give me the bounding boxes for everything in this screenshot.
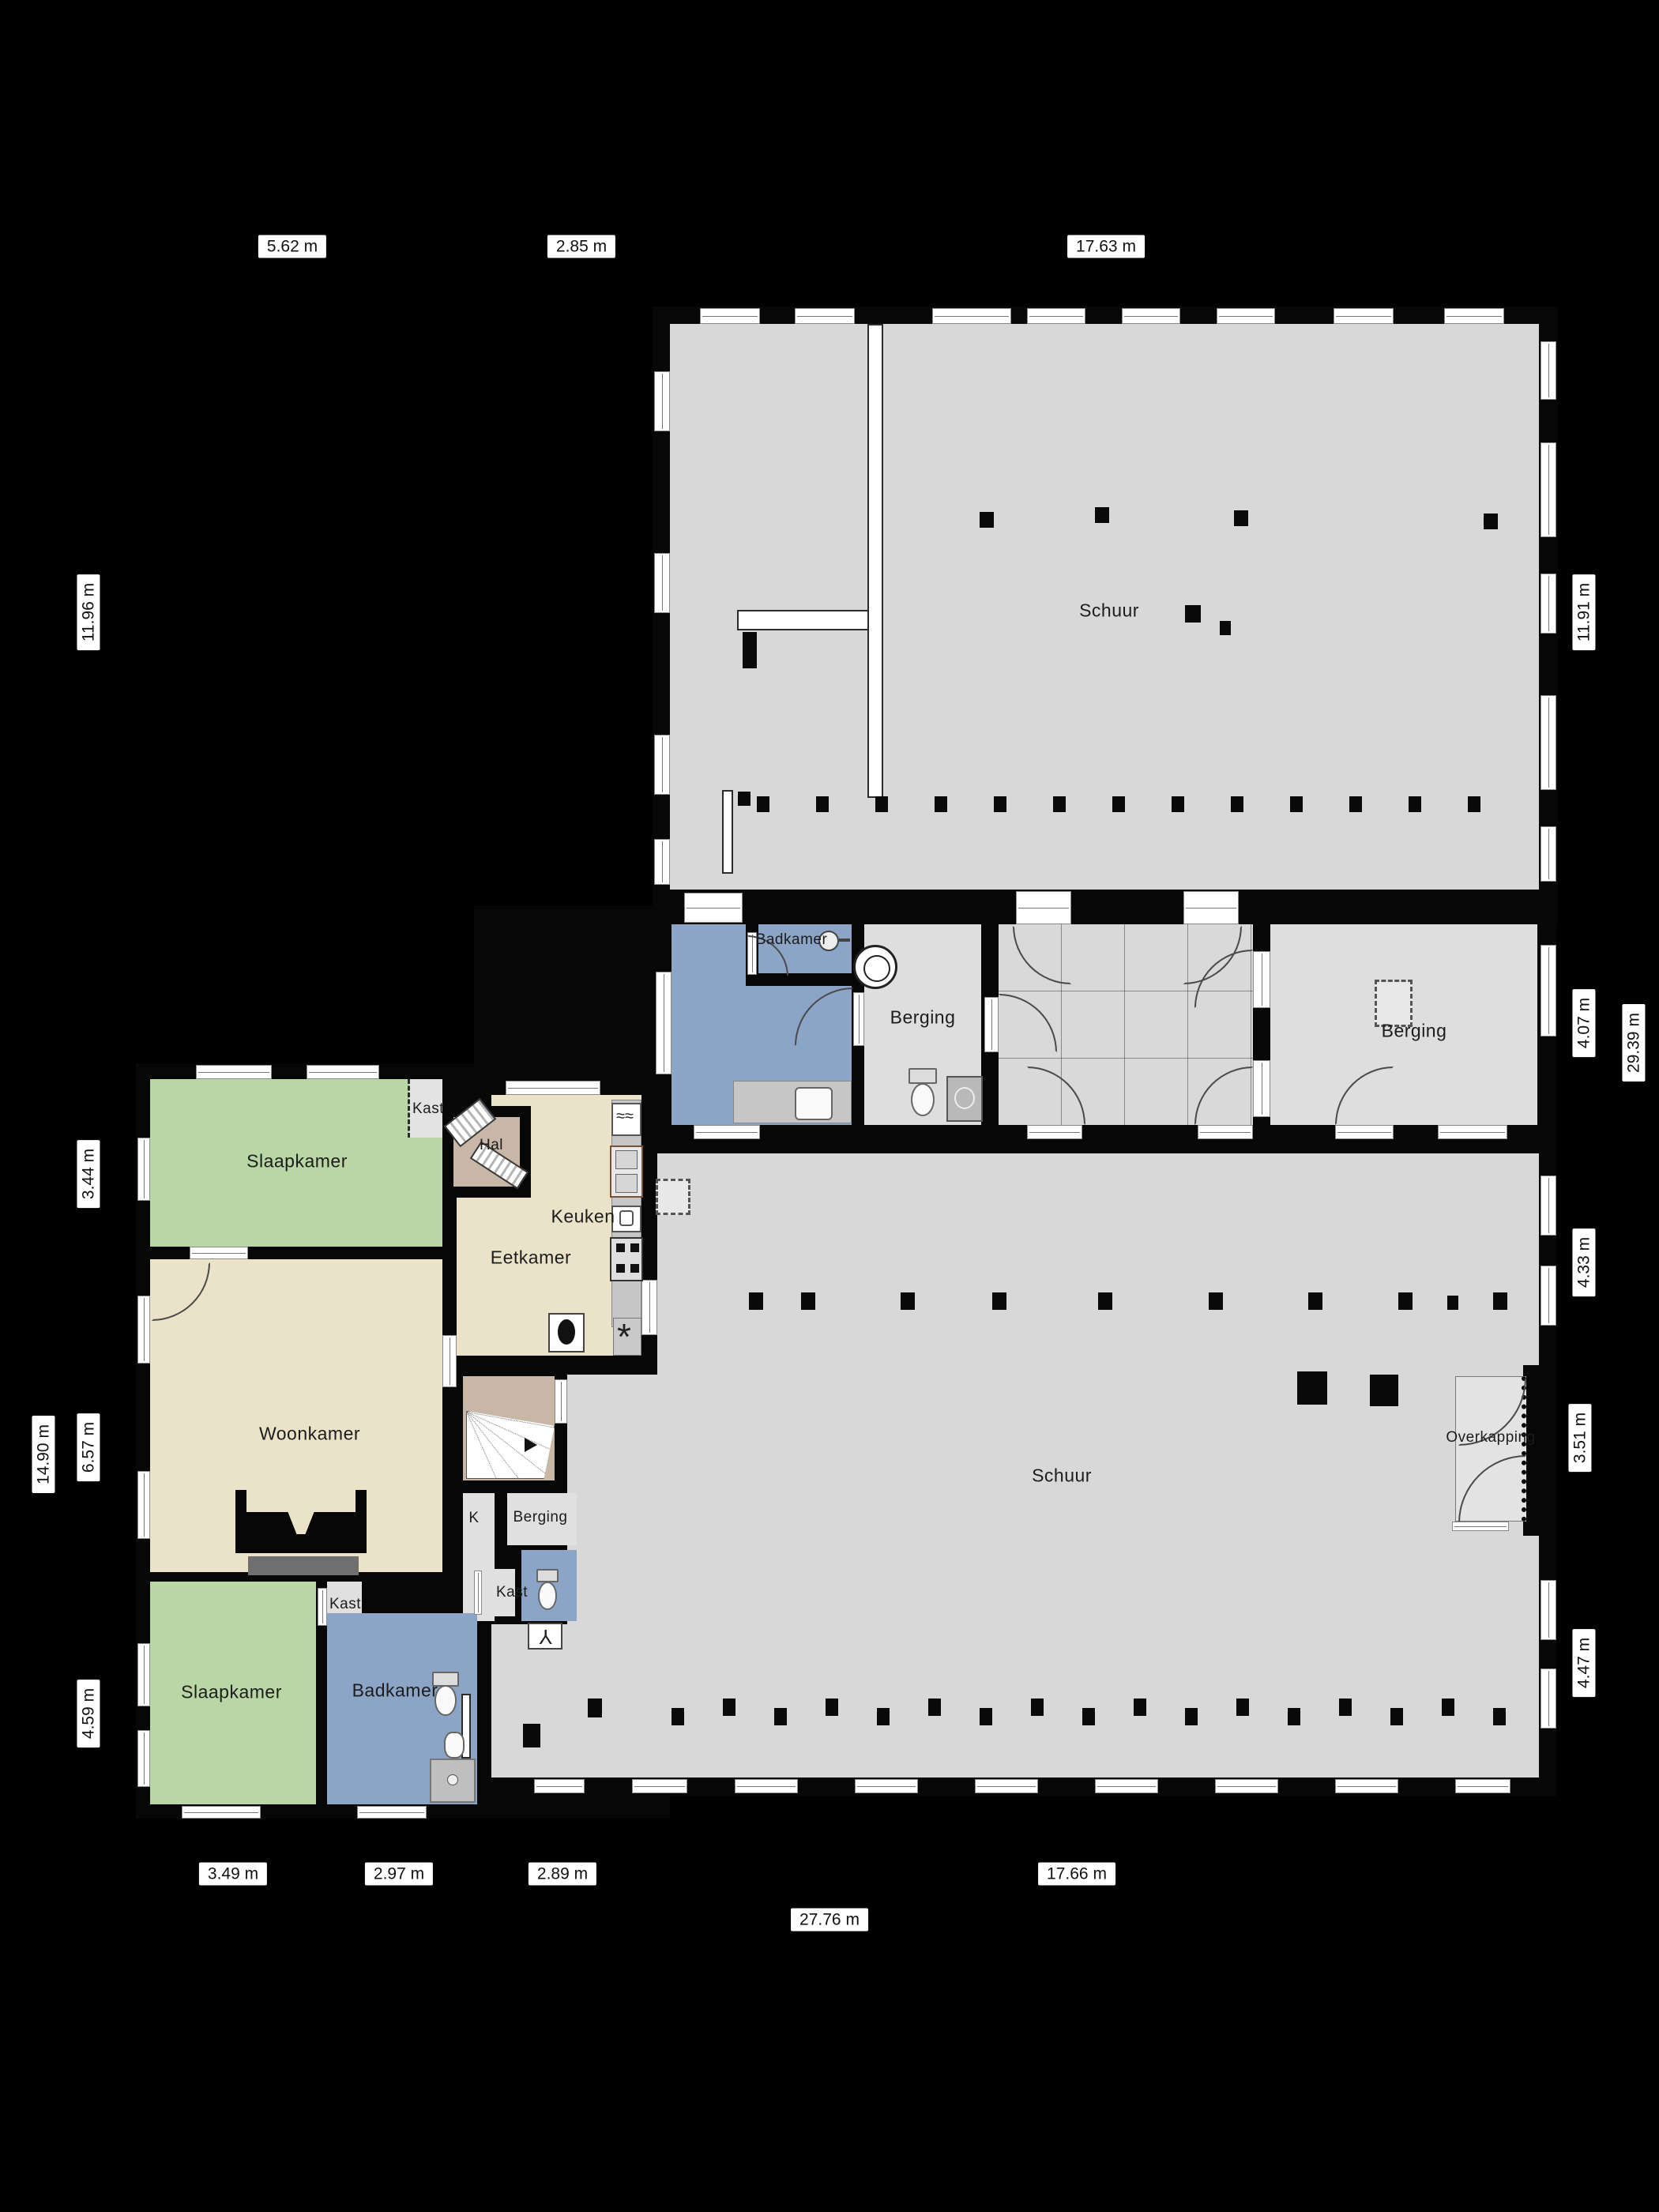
partition-wall — [737, 610, 869, 630]
column-post — [935, 796, 947, 812]
column-post — [1234, 510, 1248, 526]
column-post — [723, 1698, 735, 1716]
window — [307, 1065, 379, 1079]
partition-wall — [867, 324, 883, 798]
window — [1334, 308, 1394, 324]
dimension-label: 2.97 m — [365, 1862, 433, 1885]
window — [700, 308, 760, 324]
window — [1540, 574, 1556, 634]
window — [1335, 1125, 1394, 1139]
window — [1540, 826, 1556, 882]
burner-icon — [630, 1264, 639, 1273]
dimension-label: 2.85 m — [547, 235, 615, 258]
column-post — [1095, 507, 1109, 523]
window — [795, 308, 855, 324]
room-label-schuur-top: Schuur — [1079, 600, 1139, 622]
window — [1438, 1125, 1507, 1139]
window — [932, 308, 1011, 324]
dimension-label: 3.49 m — [199, 1862, 267, 1885]
hearth — [248, 1556, 359, 1575]
column-post — [1053, 796, 1066, 812]
column-post — [1447, 1296, 1458, 1310]
window — [1016, 891, 1071, 924]
shower-arm-icon — [839, 939, 850, 942]
room-label-badkamer-mid: Badkamer — [756, 931, 828, 949]
window — [1095, 1779, 1158, 1793]
column-post — [801, 1292, 815, 1310]
window — [506, 1081, 600, 1095]
column-post — [1409, 796, 1421, 812]
column-post — [743, 632, 757, 668]
oven-waves-icon: ≈≈ — [616, 1108, 634, 1126]
column-post — [980, 1708, 992, 1725]
window — [1253, 1060, 1270, 1117]
window — [190, 1247, 248, 1259]
column-post — [1290, 796, 1303, 812]
column-post — [1220, 621, 1231, 635]
column-post — [877, 1708, 890, 1725]
column-post — [1134, 1698, 1146, 1716]
dimension-label: 2.89 m — [529, 1862, 596, 1885]
room-label-kast-2: Kast — [329, 1596, 361, 1613]
dimension-label: 3.51 m — [1568, 1404, 1591, 1472]
dimension-label: 29.39 m — [1622, 1004, 1645, 1082]
window — [1455, 1779, 1510, 1793]
column-post — [994, 796, 1006, 812]
column-post — [749, 1292, 763, 1310]
dimension-label: 6.57 m — [77, 1413, 100, 1481]
toilet-icon — [905, 1068, 940, 1119]
window — [694, 1125, 760, 1139]
column-post — [1112, 796, 1125, 812]
room-schuur-bottom — [657, 1153, 1539, 1777]
column-post — [826, 1698, 838, 1716]
column-post — [1082, 1708, 1095, 1725]
window — [1198, 1125, 1253, 1139]
window — [137, 1296, 150, 1364]
column-post — [671, 1708, 684, 1725]
room-label-eetkamer: Eetkamer — [491, 1247, 571, 1269]
room-label-badkamer-2: Badkamer — [352, 1680, 438, 1702]
window — [1540, 1580, 1556, 1640]
column-post — [1297, 1371, 1327, 1405]
dimension-label: 4.33 m — [1572, 1228, 1595, 1296]
column-post — [523, 1724, 540, 1747]
toilet-bowl — [434, 1685, 456, 1715]
dimension-label: 4.47 m — [1572, 1629, 1595, 1697]
room-label-berging-house: Berging — [513, 1509, 568, 1526]
room-label-slaapkamer-2: Slaapkamer — [181, 1682, 282, 1703]
column-post — [1231, 796, 1243, 812]
column-post — [757, 796, 769, 812]
washbasin-icon — [795, 1087, 833, 1120]
room-label-kast-sliding: Kast — [496, 1584, 528, 1601]
dimension-label: 3.44 m — [77, 1140, 100, 1208]
column-post — [1493, 1708, 1506, 1725]
dimension-label: 4.59 m — [77, 1680, 100, 1747]
column-post — [738, 792, 750, 806]
window — [654, 839, 670, 885]
column-post — [588, 1698, 602, 1717]
basin-oval-icon — [558, 1319, 575, 1345]
column-post — [1442, 1698, 1454, 1716]
window — [182, 1806, 261, 1819]
tap-icon: Y — [539, 1624, 552, 1649]
column-post — [1370, 1375, 1398, 1406]
dimension-label: 27.76 m — [791, 1908, 868, 1931]
burner-icon — [616, 1243, 625, 1252]
window — [137, 1643, 150, 1706]
bath-counter — [733, 1081, 852, 1123]
window — [1027, 308, 1085, 324]
toilet-bowl — [538, 1582, 556, 1610]
window — [196, 1065, 272, 1079]
column-post — [816, 796, 829, 812]
room-label-overkapping: Overkapping — [1446, 1429, 1535, 1446]
window — [1253, 951, 1270, 1008]
sink-basin-icon — [615, 1150, 638, 1169]
window — [1540, 1266, 1556, 1326]
window — [1540, 945, 1556, 1036]
window — [1027, 1125, 1082, 1139]
column-post — [1468, 796, 1480, 812]
column-post — [1031, 1698, 1044, 1716]
window — [684, 893, 743, 923]
room-label-kast-1: Kast — [412, 1100, 444, 1118]
window — [137, 1138, 150, 1201]
window — [654, 553, 670, 613]
washbasin-icon — [444, 1732, 465, 1759]
toilet-tank — [536, 1569, 559, 1582]
washing-machine-icon — [853, 945, 897, 989]
column-post — [928, 1698, 941, 1716]
window — [1540, 695, 1556, 790]
toilet-bowl — [911, 1083, 935, 1116]
dimension-label: 17.66 m — [1038, 1862, 1115, 1885]
shower-drain-icon — [447, 1774, 458, 1785]
burner-icon — [616, 1264, 625, 1273]
room-label-schuur-bottom: Schuur — [1032, 1465, 1092, 1487]
window — [654, 371, 670, 431]
window — [1335, 1779, 1398, 1793]
column-post — [1288, 1708, 1300, 1725]
stairs-arrow-icon — [525, 1438, 537, 1452]
room-schuur-bottom — [491, 1624, 660, 1777]
column-post — [992, 1292, 1006, 1310]
column-post — [1390, 1708, 1403, 1725]
partition-wall — [722, 790, 733, 874]
column-post — [1349, 796, 1362, 812]
dashed-box — [656, 1179, 690, 1215]
window — [137, 1730, 150, 1787]
burner-icon — [630, 1243, 639, 1252]
window — [1217, 308, 1275, 324]
window — [137, 1471, 150, 1539]
window — [318, 1588, 327, 1626]
window — [632, 1779, 687, 1793]
window — [474, 1571, 482, 1615]
dishwasher-door-icon — [619, 1210, 634, 1226]
column-post — [1098, 1292, 1112, 1310]
window — [1183, 891, 1239, 924]
stove-icon — [610, 1237, 643, 1281]
column-post — [1185, 605, 1201, 623]
window — [1540, 442, 1556, 537]
washer-drum-icon — [863, 955, 890, 982]
window — [1452, 1522, 1509, 1531]
window — [555, 1379, 567, 1424]
window — [855, 1779, 918, 1793]
window — [357, 1806, 427, 1819]
heater-asterisk-icon: * — [617, 1318, 631, 1356]
washer-door-icon — [954, 1087, 975, 1109]
window — [1122, 308, 1180, 324]
window — [1215, 1779, 1278, 1793]
window — [975, 1779, 1038, 1793]
window — [442, 1335, 457, 1387]
dimension-label: 14.90 m — [32, 1416, 55, 1493]
window — [656, 972, 671, 1074]
room-label-k-abbrev: K — [468, 1510, 479, 1527]
dimension-label: 17.63 m — [1067, 235, 1145, 258]
toilet-icon — [534, 1569, 561, 1612]
column-post — [901, 1292, 915, 1310]
window — [641, 1280, 657, 1335]
window — [984, 997, 999, 1052]
window — [853, 992, 864, 1046]
dimension-label: 11.91 m — [1572, 574, 1595, 650]
column-post — [1172, 796, 1184, 812]
window — [735, 1779, 798, 1793]
column-post — [875, 796, 888, 812]
room-label-berging-mid-left: Berging — [890, 1007, 956, 1029]
column-post — [1185, 1708, 1198, 1725]
window — [1540, 1176, 1556, 1236]
window — [1540, 341, 1556, 400]
floor-plan: ≈≈*YSchuurBadkamerBergingBergingSchuurOv… — [0, 0, 1659, 2212]
window — [1444, 308, 1504, 324]
column-post — [774, 1708, 787, 1725]
dimension-label: 4.07 m — [1572, 989, 1595, 1057]
window — [654, 735, 670, 795]
dimension-label: 11.96 m — [77, 574, 100, 650]
window — [1540, 1668, 1556, 1729]
column-post — [1484, 513, 1498, 529]
room-label-hal: Hal — [480, 1137, 503, 1154]
column-post — [1209, 1292, 1223, 1310]
room-label-berging-mid-right: Berging — [1382, 1021, 1447, 1042]
dimension-label: 5.62 m — [258, 235, 326, 258]
column-post — [980, 512, 994, 528]
wall — [1523, 1365, 1556, 1536]
column-post — [1236, 1698, 1249, 1716]
room-label-woonkamer: Woonkamer — [259, 1424, 360, 1445]
column-post — [1308, 1292, 1322, 1310]
toilet-tank — [908, 1068, 938, 1084]
column-post — [1339, 1698, 1352, 1716]
window — [534, 1779, 585, 1793]
column-post — [1493, 1292, 1507, 1310]
closet-dashed-line — [408, 1079, 410, 1138]
room-label-slaapkamer-1: Slaapkamer — [246, 1151, 348, 1172]
sink-basin-icon — [615, 1174, 638, 1193]
column-post — [1398, 1292, 1413, 1310]
room-label-keuken: Keuken — [551, 1206, 615, 1228]
